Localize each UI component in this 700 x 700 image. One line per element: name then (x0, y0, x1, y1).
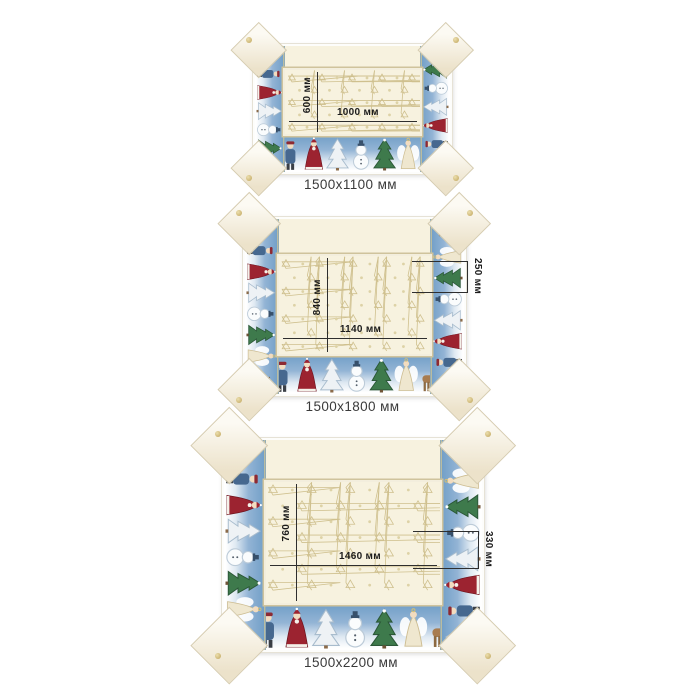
angel-icon (395, 359, 418, 391)
product-size-caption: 1500x1100 мм (253, 177, 448, 192)
bracket-line (467, 261, 468, 293)
corner-tassel-icon (485, 431, 491, 437)
green-tree-icon (434, 268, 462, 287)
snowy-tree-icon (225, 519, 260, 543)
width-dimension-label: 1460 мм (280, 551, 440, 562)
corner-tassel-icon (215, 431, 221, 437)
tablecloth-image: 760 мм 1460 мм (222, 438, 484, 652)
santa-icon (423, 119, 448, 133)
snowy-tree-icon (313, 610, 339, 649)
corner-tassel-icon (453, 37, 459, 43)
corner-tassel-icon (467, 397, 473, 403)
snowman-icon (248, 307, 274, 321)
product-size-caption: 1500x2200 мм (222, 655, 480, 670)
product-card-1500x1800: 840 мм 1140 мм 330 мм 1500x1800 мм (243, 217, 503, 422)
snowy-tree-icon (434, 311, 462, 330)
snowman-icon (258, 124, 281, 136)
snowy-tree-icon (327, 139, 348, 170)
width-dimension-label: 1000 мм (296, 107, 420, 118)
product-card-1500x2200: 760 мм 1460 мм 370 мм 1500x2200 мм (222, 438, 512, 683)
child-icon (285, 141, 295, 170)
green-tree-icon (246, 325, 274, 344)
width-dimension-line (289, 121, 417, 122)
tablecloth-center-field: 840 мм 1140 мм (279, 256, 430, 354)
santa-icon (305, 138, 323, 170)
snowman-icon (447, 524, 479, 541)
corner-tassel-icon (246, 175, 252, 181)
santa-icon (298, 358, 317, 391)
angel-icon (400, 609, 427, 646)
bracket-line (478, 531, 479, 569)
snowman-icon (436, 292, 462, 306)
corner-tassel-icon (236, 210, 242, 216)
corner-tassel-icon (236, 397, 242, 403)
corner-tassel-icon (485, 653, 491, 659)
bracket-top-tick (412, 261, 468, 262)
green-tree-icon (445, 495, 480, 519)
santa-icon (286, 608, 308, 647)
dimension-overlay: 840 мм 1140 мм (279, 256, 430, 354)
dimension-overlay: 760 мм 1460 мм (266, 482, 440, 603)
width-dimension-line (283, 338, 427, 339)
tablecloth-center-field: 760 мм 1460 мм (266, 482, 440, 603)
snowy-tree-icon (246, 283, 274, 302)
santa-icon (248, 264, 276, 280)
height-dimension-line (317, 72, 318, 132)
santa-icon (258, 86, 283, 100)
green-tree-icon (225, 571, 260, 595)
product-dimensions-sheet: 600 мм 1000 мм 250 мм 1500x1100 мм (0, 0, 700, 700)
width-dimension-label: 1140 мм (291, 324, 430, 335)
snowy-tree-icon (257, 103, 282, 120)
corner-tassel-icon (467, 210, 473, 216)
drop-length-label: 330 мм (483, 531, 494, 567)
bracket-bottom-tick (412, 292, 468, 293)
snowman-icon (425, 82, 448, 94)
santa-icon (433, 333, 461, 349)
snowy-tree-icon (321, 359, 343, 392)
santa-icon (444, 575, 479, 594)
bracket-top-tick (413, 531, 479, 532)
corner-tassel-icon (215, 653, 221, 659)
snowman-icon (346, 611, 365, 647)
dimension-overlay: 600 мм 1000 мм (285, 70, 420, 134)
width-dimension-line (270, 565, 437, 566)
tablecloth-image: 840 мм 1140 мм (243, 217, 466, 396)
bracket-bottom-tick (413, 568, 479, 569)
tablecloth-center-field: 600 мм 1000 мм (285, 70, 420, 134)
product-size-caption: 1500x1800 мм (243, 399, 462, 414)
green-tree-icon (370, 359, 392, 392)
santa-icon (227, 495, 262, 514)
green-tree-icon (371, 609, 397, 648)
snowman-icon (354, 140, 369, 169)
corner-tassel-icon (453, 175, 459, 181)
snowman-icon (349, 361, 365, 391)
tablecloth-image: 600 мм 1000 мм (253, 44, 452, 174)
drop-length-label: 250 мм (472, 258, 483, 294)
angel-icon (397, 138, 419, 168)
height-dimension-line (296, 484, 297, 601)
corner-tassel-icon (246, 37, 252, 43)
snowman-icon (227, 549, 259, 566)
green-tree-icon (374, 139, 395, 171)
product-card-1500x1100: 600 мм 1000 мм 250 мм 1500x1100 мм (253, 44, 483, 200)
snowy-tree-icon (424, 98, 449, 115)
